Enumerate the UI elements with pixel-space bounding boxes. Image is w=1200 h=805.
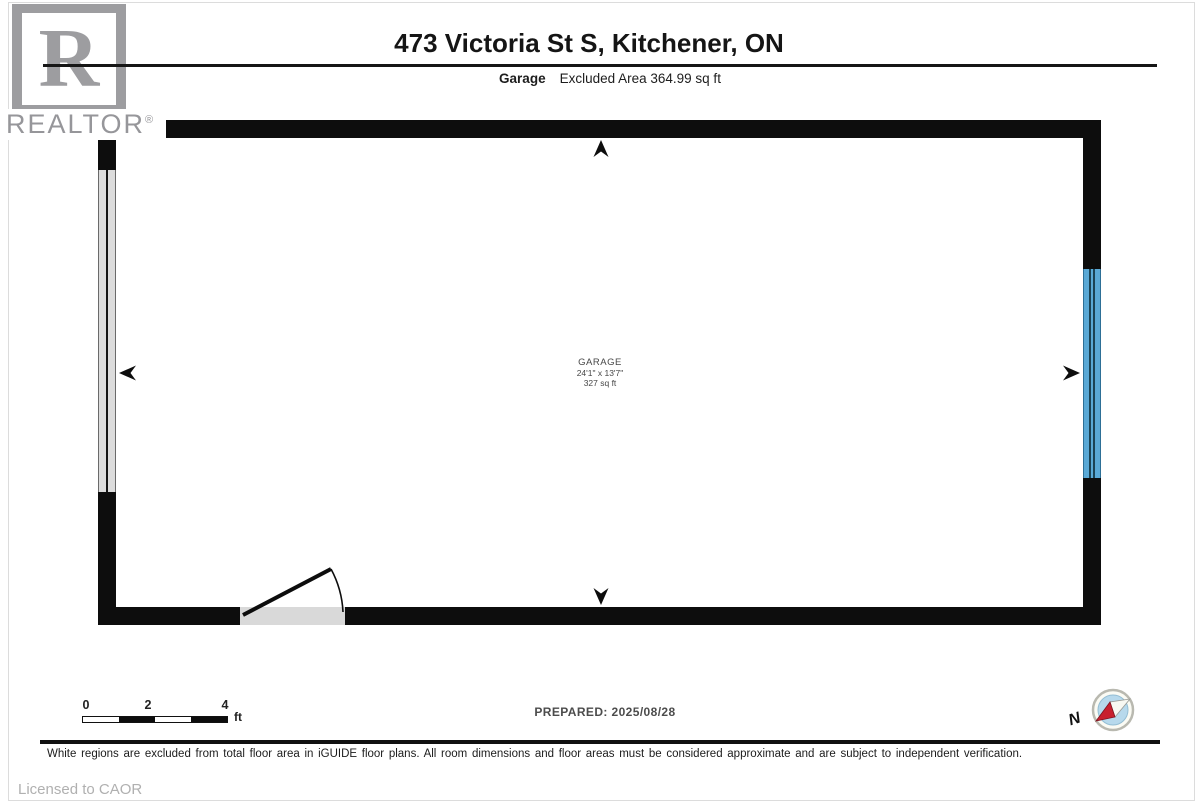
door-opening-sill: [240, 607, 345, 625]
excluded-area-value: Excluded Area 364.99 sq ft: [560, 71, 721, 86]
floorplan-page: N R REALTOR® 473 Victoria St S, Kitchene…: [0, 0, 1200, 805]
window-pane-line: [106, 170, 108, 492]
prepared-date: PREPARED: 2025/08/28: [5, 705, 1200, 719]
garage-door-blue: [1083, 269, 1101, 478]
registered-mark: ®: [145, 114, 153, 126]
realtor-wordmark: REALTOR®: [6, 109, 166, 140]
page-title: 473 Victoria St S, Kitchener, ON: [0, 28, 1178, 59]
garage-door-pane-line: [1093, 269, 1095, 478]
arrow-up-icon: [594, 140, 609, 157]
room-dimensions: 24'1" x 13'7": [490, 368, 710, 378]
wall-bottom-right: [345, 607, 1101, 625]
wall-top: [98, 120, 1101, 138]
licensed-to-text: Licensed to CAOR: [18, 781, 142, 798]
window-left: [98, 170, 116, 492]
realtor-logo: R: [12, 4, 126, 114]
disclaimer-text: White regions are excluded from total fl…: [47, 748, 1157, 760]
realtor-logo-inner: R: [22, 13, 116, 105]
floor-name: Garage: [499, 71, 546, 86]
room-area: 327 sq ft: [490, 378, 710, 388]
room-name: GARAGE: [490, 357, 710, 368]
arrow-down-icon: [594, 588, 609, 605]
room-label: GARAGE 24'1" x 13'7" 327 sq ft: [490, 357, 710, 388]
garage-door-pane-line: [1089, 269, 1091, 478]
realtor-logo-letter: R: [39, 17, 100, 101]
wall-bottom-left: [98, 607, 240, 625]
wall-right-top: [1083, 120, 1101, 269]
title-divider: [43, 64, 1157, 67]
floor-subtitle: GarageExcluded Area 364.99 sq ft: [0, 71, 1200, 86]
arrow-left-icon: [119, 366, 136, 381]
footer-divider: [40, 740, 1160, 744]
wall-left-bottom: [98, 492, 116, 625]
arrow-right-icon: [1063, 366, 1080, 381]
wall-right-bottom: [1083, 478, 1101, 625]
